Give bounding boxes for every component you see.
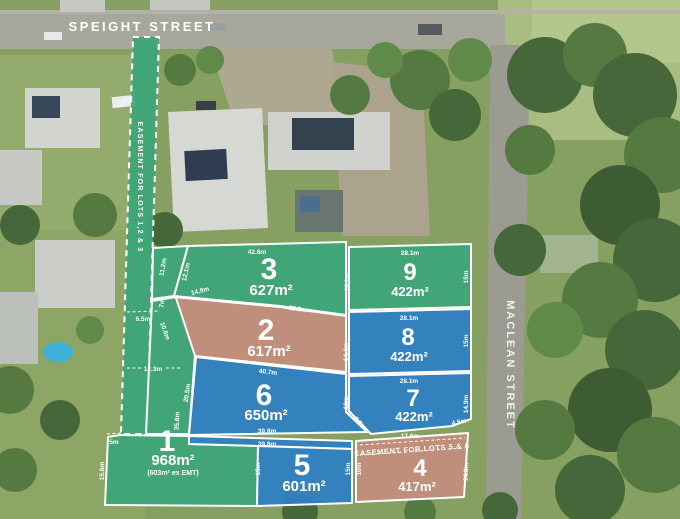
easement-lots123-label: EASEMENT FOR LOTS 1,2 & 3: [136, 122, 143, 253]
dim-lot4-right: 14.6m: [463, 462, 471, 481]
lot-6-area: 650m²: [244, 407, 287, 424]
lot-4-number: 4: [413, 455, 427, 482]
lot-9-area: 422m²: [391, 284, 429, 299]
dim-lot5-left: 15m: [255, 462, 262, 475]
swimming-pool: [43, 342, 73, 362]
dim-corridor-width: 12.3m: [144, 366, 163, 373]
lot-2-area: 617m²: [247, 343, 290, 360]
dim-lot9-top: 28.1m: [401, 250, 420, 257]
lot-4-area: 417m²: [398, 479, 436, 494]
dim-lot1-notch: 5m: [109, 439, 119, 446]
lot-8-number: 8: [401, 324, 414, 351]
lot-7-area: 422m²: [395, 409, 433, 424]
dim-lot7-top: 28.1m: [400, 378, 419, 385]
lot-3-area: 627m²: [249, 282, 292, 299]
dim-lot3-top: 42.6m: [248, 249, 267, 256]
dim-lot6-bottom: 39.8m: [258, 428, 277, 435]
dim-lot4-left: 10m: [356, 462, 363, 475]
solar-panels: [292, 118, 354, 150]
dim-lot7-bottom: 17.6m: [401, 433, 420, 440]
lot-1-area-note: (603m² ex EMT): [147, 470, 198, 477]
solar-panels: [184, 149, 228, 181]
dim-lot1-left: 15.6m: [99, 462, 106, 481]
aerial-plan-svg: SPEIGHT STREET MACLEAN STREET EASEMENT F…: [0, 0, 680, 519]
dim-lot8-top: 28.1m: [400, 315, 419, 322]
dim-lot6-left-lower: 35.6m: [174, 411, 182, 430]
lot-8-area: 422m²: [390, 349, 428, 364]
dim-lot5-top: 39.8m: [258, 441, 277, 448]
dim-lot2-right: 14.4m: [343, 343, 350, 362]
lot-1-area: 968m²: [151, 452, 194, 469]
subdivision-plan: SPEIGHT STREET MACLEAN STREET EASEMENT F…: [0, 0, 680, 519]
dim-lot5-right: 15m: [345, 462, 352, 475]
solar-panels: [32, 96, 60, 118]
lot-9-number: 9: [403, 259, 416, 286]
street-name-maclean: MACLEAN STREET: [504, 300, 516, 429]
dim-lot9-right: 15m: [463, 270, 470, 283]
dim-lot7-left: 12m: [343, 396, 350, 409]
dim-strip-width: 6.5m: [136, 316, 151, 323]
dim-lot3-right: 18.1m: [344, 273, 351, 292]
lot-7-number: 7: [406, 385, 419, 412]
dim-lot7-right: 14.9m: [463, 395, 470, 414]
street-name-speight: SPEIGHT STREET: [69, 19, 216, 34]
dim-lot8-right: 15m: [463, 334, 470, 347]
lot-5-area: 601m²: [282, 478, 325, 495]
